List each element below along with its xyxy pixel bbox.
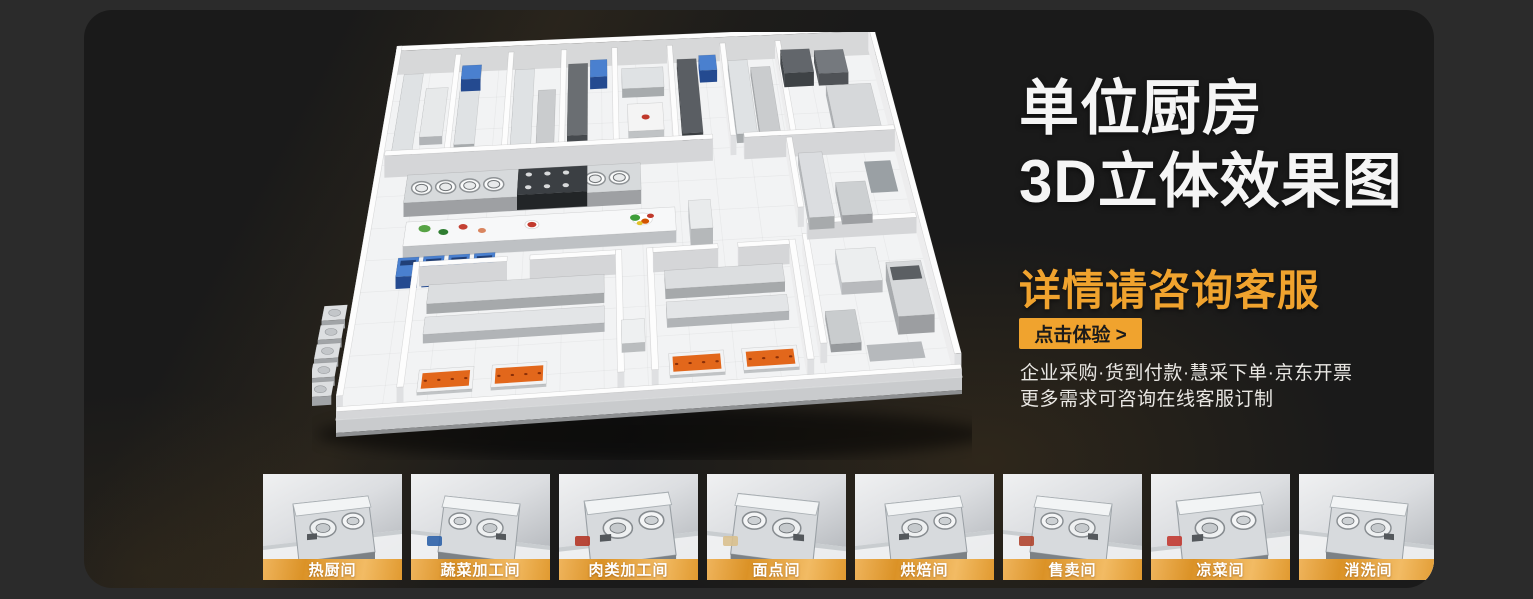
thumbnail-pastry-room[interactable]: 面点间 [707,474,846,580]
thumbnail-meat-processing[interactable]: 肉类加工间 [559,474,698,580]
banner-panel: 单位厨房 3D立体效果图 详情请咨询客服 点击体验 > 企业采购·货到付款·慧采… [84,10,1434,588]
room-thumbnail-label: 肉类加工间 [559,559,698,580]
room-thumbnail-label: 面点间 [707,559,846,580]
thumbnail-vegetable-processing[interactable]: 蔬菜加工间 [411,474,550,580]
thumbnail-baking-room[interactable]: 烘焙间 [855,474,994,580]
room-thumbnail-label: 凉菜间 [1151,559,1290,580]
banner-title: 单位厨房 3D立体效果图 [1019,72,1403,218]
info-line-1: 企业采购·货到付款·慧采下单·京东开票 [1020,361,1352,387]
thumbnail-accent [427,536,442,546]
cta-button[interactable]: 点击体验 > [1019,318,1142,349]
room-thumbnail-label: 售卖间 [1003,559,1142,580]
room-thumbnail-label: 蔬菜加工间 [411,559,550,580]
thumbnail-sales-room[interactable]: 售卖间 [1003,474,1142,580]
thumbnail-accent [1167,536,1182,546]
banner-subtitle: 详情请咨询客服 [1019,257,1320,318]
thumbnail-accent [871,536,886,546]
room-thumbnail-label: 热厨间 [263,559,402,580]
thumbnail-accent [575,536,590,546]
room-thumbnails: 热厨间 蔬菜加工间 肉类加工间 面点间 烘焙间 售卖间 [263,474,1434,580]
kitchen-floorplan-3d-render [312,32,972,460]
thumbnail-accent [1019,536,1034,546]
thumbnail-washing-room[interactable]: 消洗间 [1299,474,1434,580]
thumbnail-accent [279,536,294,546]
thumbnail-accent [723,536,738,546]
room-thumbnail-label: 消洗间 [1299,559,1434,580]
banner-info: 企业采购·货到付款·慧采下单·京东开票 更多需求可咨询在线客服订制 [1020,361,1352,413]
banner-title-line1: 单位厨房 [1019,72,1403,145]
info-line-2: 更多需求可咨询在线客服订制 [1020,387,1352,413]
thumbnail-accent [1315,536,1330,546]
banner-title-line2: 3D立体效果图 [1019,145,1403,218]
thumbnail-cold-dish-room[interactable]: 凉菜间 [1151,474,1290,580]
page: { "banner": { "title_line1": "单位厨房", "ti… [0,0,1533,599]
thumbnail-hot-kitchen[interactable]: 热厨间 [263,474,402,580]
room-thumbnail-label: 烘焙间 [855,559,994,580]
